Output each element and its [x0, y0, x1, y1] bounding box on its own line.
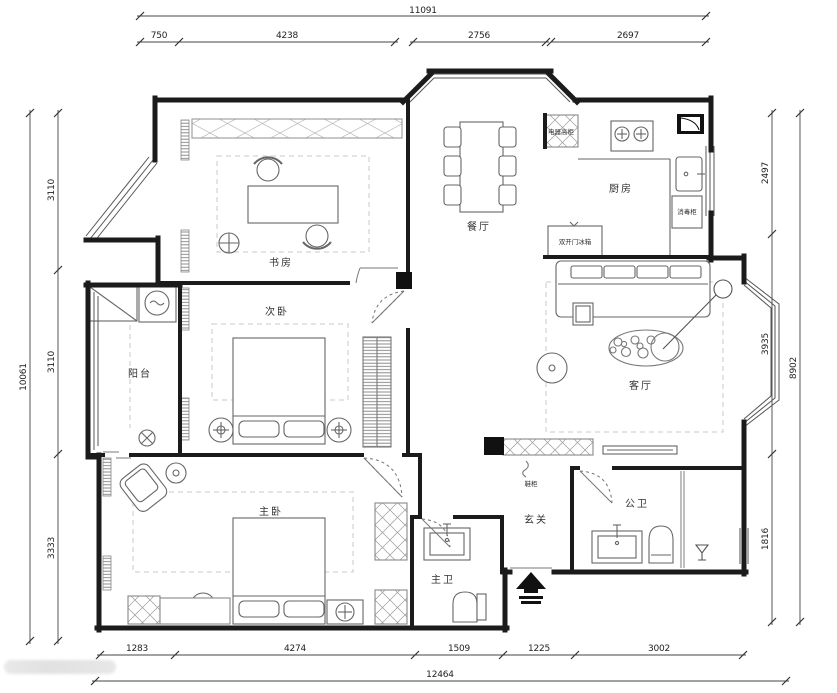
kitchen-sink: [676, 157, 705, 191]
stove: [611, 121, 653, 151]
dim-top-total: 11091: [409, 6, 437, 16]
public-bath-toilet: [649, 526, 673, 563]
master-radiators: [103, 458, 111, 590]
label-fridge: 双开门冰箱: [559, 237, 592, 246]
washing-machine: [139, 285, 176, 322]
dim-right-seg-1: 3935: [761, 333, 771, 355]
room-label-living: 客厅: [629, 379, 653, 392]
coffee-table: [537, 353, 567, 383]
room-label-study: 书房: [269, 256, 293, 269]
room-label-public-bath: 公卫: [625, 499, 649, 510]
bedroom2-lamp-left: [209, 418, 233, 442]
room-label-entry: 玄关: [524, 513, 548, 526]
structural-columns: [396, 272, 504, 455]
room-label-balcony: 阳台: [128, 367, 152, 380]
sofa-side-table: [573, 303, 593, 325]
kitchen-flue: [677, 114, 704, 134]
shower-screen: [681, 471, 684, 568]
dimension-bottom: 1283 4274 1509 1225 3002 12464: [91, 644, 790, 685]
master-armchair: [117, 461, 169, 514]
bedroom2-wardrobe: [363, 337, 391, 447]
public-bath-sink: [592, 525, 642, 563]
room-label-dining: 餐厅: [467, 220, 491, 233]
label-appliance-cabinet: 电器高柜: [548, 127, 575, 136]
master-side-table: [166, 463, 186, 483]
study-desk: [248, 186, 338, 223]
study-plant: [219, 233, 239, 253]
dim-bottom-seg-3: 1225: [528, 644, 550, 654]
shoe-cabinet-leader: [523, 461, 529, 477]
dim-bottom-seg-2: 1509: [448, 644, 471, 654]
dimension-top: 11091 750 4238 2756 2697: [136, 6, 710, 46]
dimension-right: 2497 3935 1816 8902: [761, 109, 804, 626]
dining-table: [460, 122, 503, 212]
dim-top-seg-1: 4238: [276, 31, 299, 41]
study-chair-1: [254, 157, 282, 181]
dim-bottom-total: 12464: [426, 670, 454, 680]
study-radiators: [181, 120, 189, 272]
dim-right-total: 8902: [789, 357, 799, 379]
entry-arrow: [516, 572, 546, 604]
master-nightstand: [327, 600, 363, 624]
dim-left-seg-2: 3333: [47, 537, 57, 559]
windows: [86, 74, 779, 564]
study-chair-2: [303, 225, 331, 249]
watermark: [4, 660, 116, 674]
dim-left-seg-1: 3110: [47, 350, 57, 373]
dim-right-seg-2: 1816: [761, 527, 771, 550]
dim-left-total: 10061: [19, 363, 29, 391]
master-bath-sink: [424, 524, 470, 560]
dim-left-seg-0: 3110: [47, 178, 57, 201]
bedroom2-radiators: [181, 288, 189, 440]
room-label-master-bath: 主卫: [431, 574, 455, 586]
master-bed: [233, 518, 325, 624]
dimension-left: 10061 3110 3110 3333: [19, 109, 62, 645]
balcony-cabinet: [90, 287, 137, 321]
dim-top-seg-0: 750: [151, 31, 168, 41]
floor-plan-canvas: 11091 750 4238 2756 2697 1283 4274 1509 …: [0, 0, 837, 693]
pebble-rug: [609, 330, 683, 366]
bedroom2-bed: [233, 338, 325, 444]
floor-drain: [139, 430, 155, 446]
tv-bench: [603, 446, 677, 454]
dim-top-seg-2: 2756: [468, 31, 491, 41]
dim-bottom-seg-4: 3002: [648, 644, 670, 654]
bedroom2-lamp-right: [327, 418, 351, 442]
label-sterilizer: 消毒柜: [677, 207, 697, 216]
room-label-second-bedroom: 次卧: [265, 305, 289, 318]
room-label-kitchen: 厨房: [609, 182, 633, 195]
dim-right-seg-0: 2497: [761, 162, 771, 184]
study-bookshelf: [192, 119, 402, 138]
dim-bottom-seg-0: 1283: [126, 644, 148, 654]
label-shoe-cabinet: 鞋柜: [525, 479, 539, 488]
shower-drain-icon: [696, 545, 708, 560]
room-label-master-bedroom: 主卧: [259, 505, 283, 518]
master-bath-toilet: [453, 592, 486, 622]
dim-bottom-seg-1: 4274: [284, 644, 307, 654]
dim-top-seg-3: 2697: [617, 31, 639, 41]
shoe-cabinet-box: [503, 439, 593, 455]
